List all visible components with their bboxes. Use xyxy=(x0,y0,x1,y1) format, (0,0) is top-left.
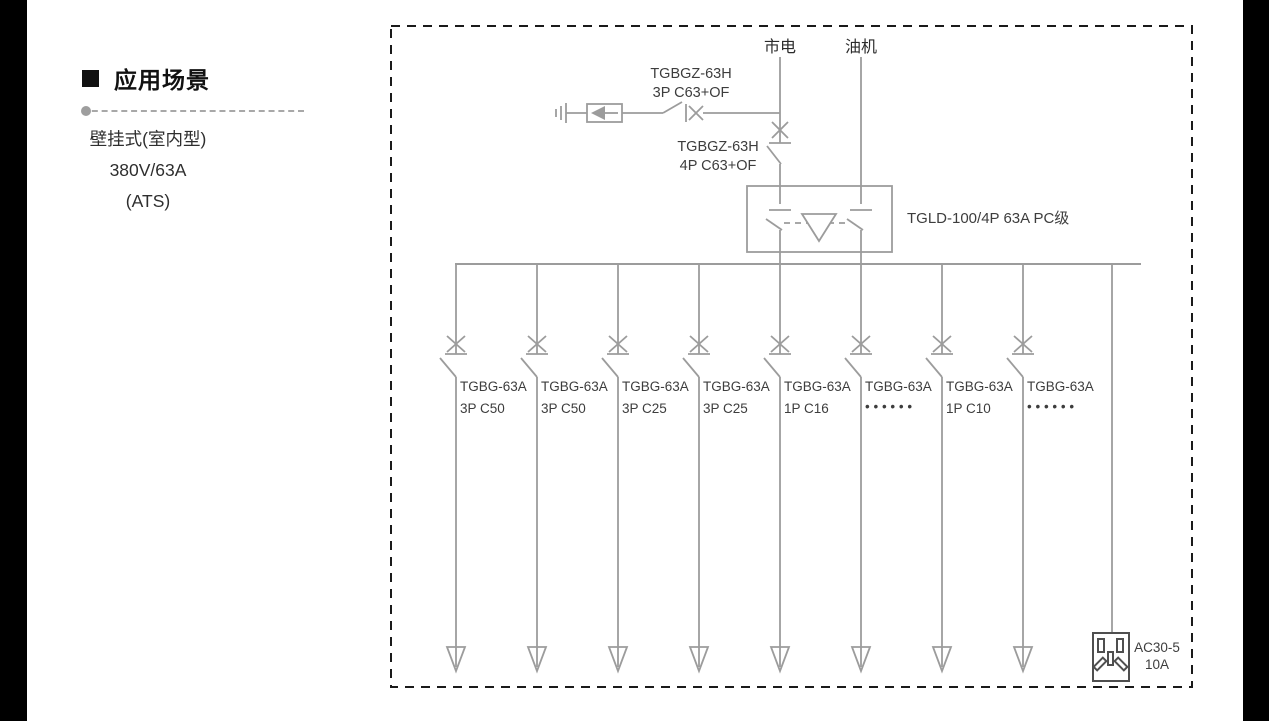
branch-model: TGBG-63A xyxy=(865,379,932,394)
branch-model: TGBG-63A xyxy=(946,379,1013,394)
ats-switch xyxy=(747,186,892,264)
feeder-branch-1: TGBG-63A 3P C50 xyxy=(440,264,527,671)
diagram-border xyxy=(391,26,1192,687)
feeder-branch-8: TGBG-63A • • • • • • xyxy=(1007,264,1094,671)
branch-model: TGBG-63A xyxy=(460,379,527,394)
branch-spec: 1P C16 xyxy=(784,401,829,416)
spd-breaker-model: TGBGZ-63H xyxy=(650,66,731,82)
branch-spec: • • • • • • xyxy=(865,399,912,414)
main-breaker-spec: 4P C63+OF xyxy=(680,158,757,174)
spd-arrow-box-icon xyxy=(587,104,622,122)
feeder-branch-5: TGBG-63A 1P C16 xyxy=(764,264,851,671)
feeder-branch-7: TGBG-63A 1P C10 xyxy=(926,264,1013,671)
branch-model: TGBG-63A xyxy=(703,379,770,394)
single-line-diagram: 市电 油机 TGBGZ-63H 3P C63+OF TG xyxy=(0,0,1269,721)
interlock-triangle-icon xyxy=(802,214,836,241)
branch-spec: 1P C10 xyxy=(946,401,991,416)
branch-model: TGBG-63A xyxy=(541,379,608,394)
generator-source-label: 油机 xyxy=(845,38,877,56)
main-breaker-model: TGBGZ-63H xyxy=(677,139,758,155)
branch-spec: 3P C25 xyxy=(703,401,748,416)
feeder-branch-3: TGBG-63A 3P C25 xyxy=(602,264,689,671)
socket-branch: AC30-5 10A xyxy=(1093,264,1180,681)
branch-model: TGBG-63A xyxy=(784,379,851,394)
feeder-branch-2: TGBG-63A 3P C50 xyxy=(521,264,608,671)
branch-spec: • • • • • • xyxy=(1027,399,1074,414)
feeder-branch-4: TGBG-63A 3P C25 xyxy=(683,264,770,671)
branch-spec: 3P C50 xyxy=(541,401,586,416)
power-socket-icon xyxy=(1093,633,1129,681)
branch-spec: 3P C25 xyxy=(622,401,667,416)
socket-rating: 10A xyxy=(1145,657,1169,672)
ground-icon xyxy=(556,103,566,123)
branch-spec: 3P C50 xyxy=(460,401,505,416)
socket-model: AC30-5 xyxy=(1134,640,1180,655)
spd-breaker-spec: 3P C63+OF xyxy=(653,85,730,101)
branch-model: TGBG-63A xyxy=(622,379,689,394)
ats-label: TGLD-100/4P 63A PC级 xyxy=(907,210,1069,227)
mains-source-label: 市电 xyxy=(764,38,796,56)
feeder-branch-6: TGBG-63A • • • • • • xyxy=(845,264,932,671)
branch-model: TGBG-63A xyxy=(1027,379,1094,394)
spd-branch xyxy=(556,102,780,123)
mains-incoming-line xyxy=(767,57,791,187)
